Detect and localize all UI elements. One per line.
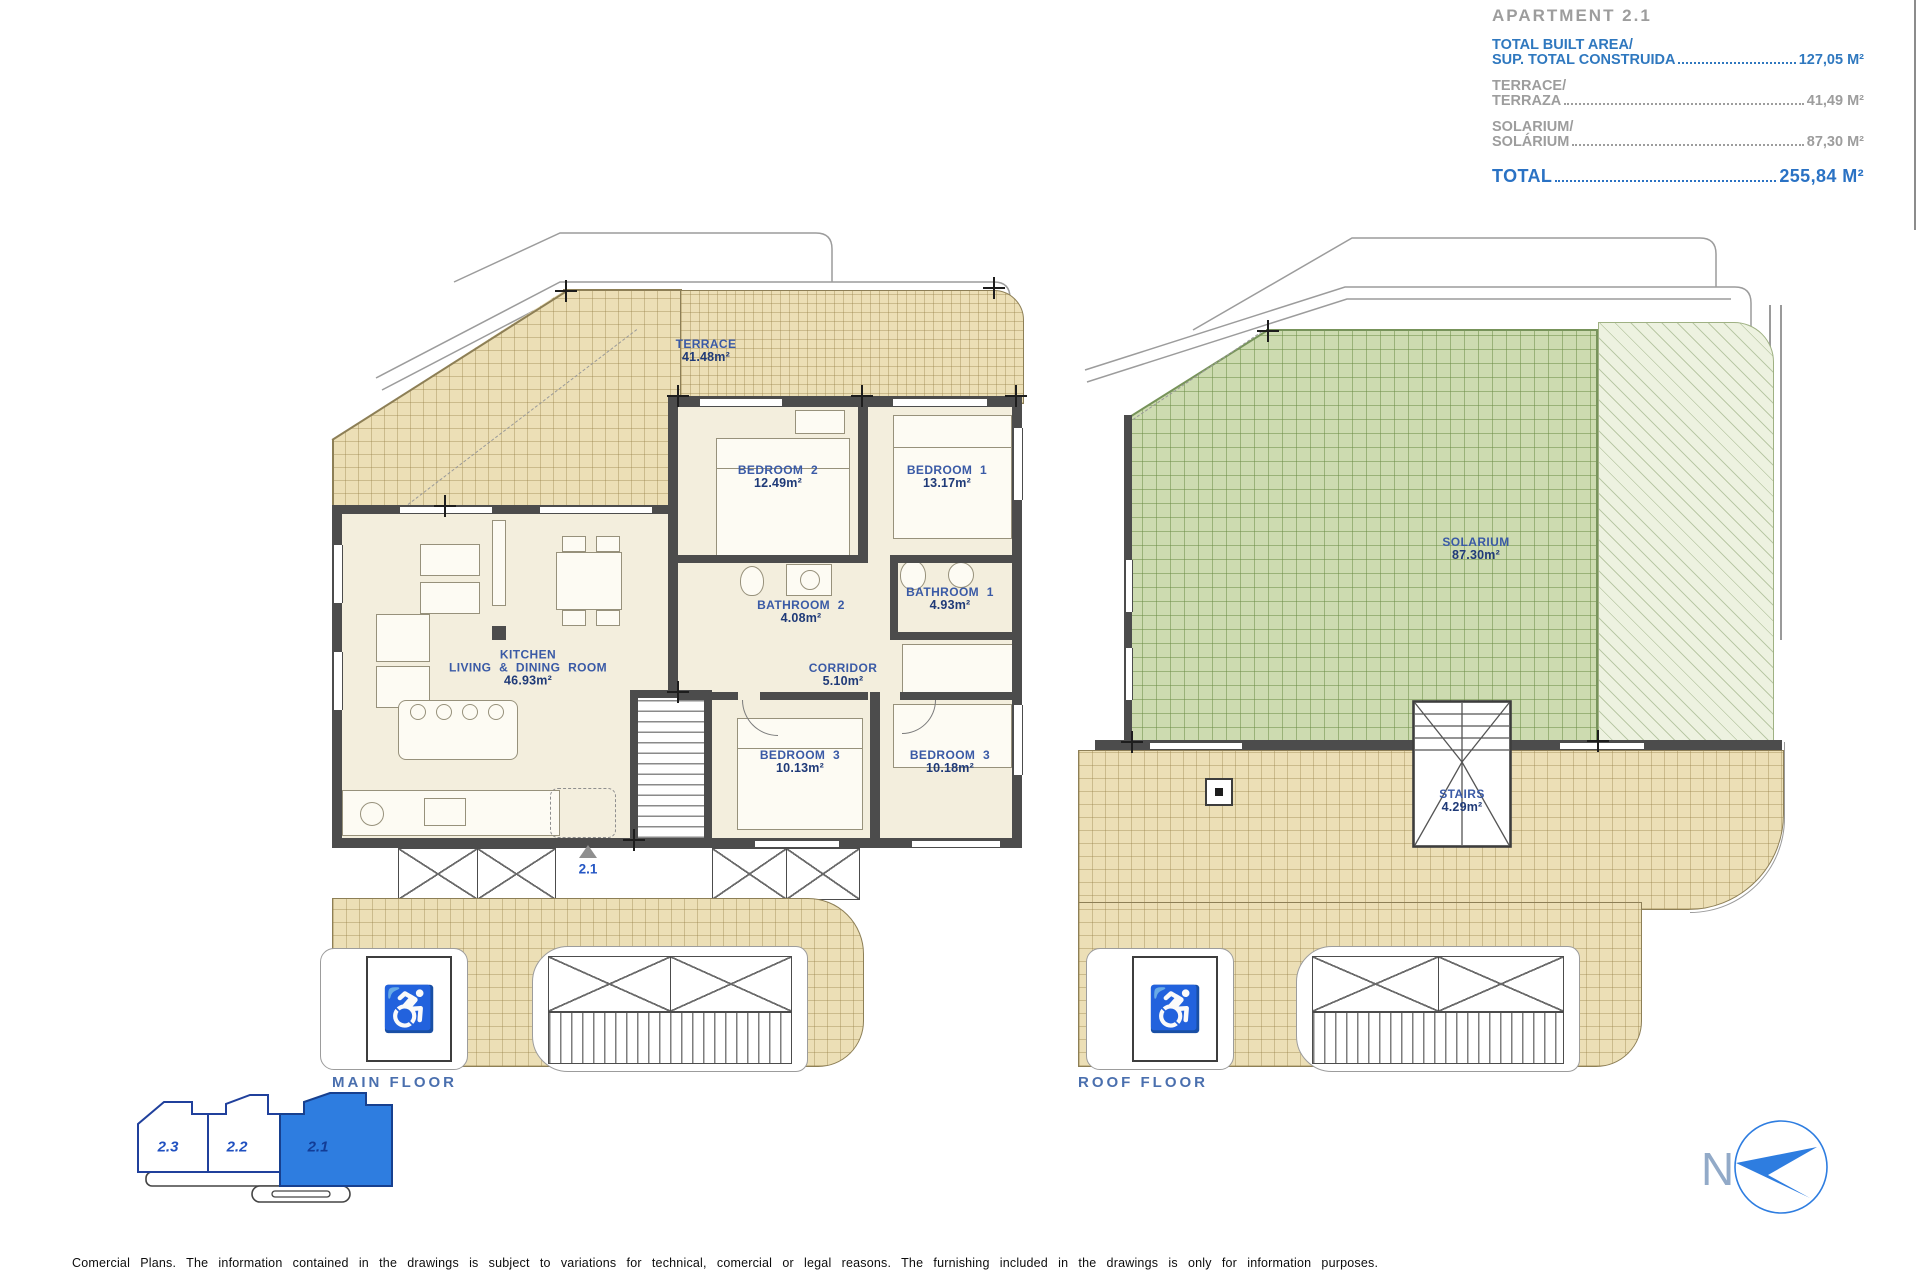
- column-dot: [1215, 788, 1223, 796]
- survey-cross: [623, 829, 645, 851]
- apartment-title: APARTMENT 2.1: [1492, 6, 1864, 26]
- info-row-solarium: SOLARIUM/ SOLÁRIUM 87,30 M²: [1492, 120, 1864, 150]
- room-name: TERRACE: [676, 337, 737, 351]
- room-label-terrace: TERRACE 41.48m²: [676, 338, 737, 364]
- room-name: BATHROOM 1: [906, 585, 994, 599]
- window: [893, 398, 987, 407]
- wall: [678, 555, 858, 563]
- lightwell-box: [548, 956, 792, 1012]
- room-area: 4.93m²: [906, 599, 994, 612]
- stool: [436, 704, 452, 720]
- info-label: SUP. TOTAL CONSTRUIDA: [1492, 53, 1675, 68]
- window: [755, 840, 839, 848]
- stair-treads: [548, 1012, 792, 1064]
- wall: [858, 396, 868, 563]
- sink: [360, 802, 384, 826]
- room-area: 12.49m²: [738, 477, 818, 490]
- room-area: 4.08m²: [757, 612, 845, 625]
- stool: [462, 704, 478, 720]
- roof-edge-line: [1780, 305, 1782, 640]
- info-value: 41,49 M²: [1807, 94, 1864, 109]
- room-area: 87.30m²: [1442, 549, 1509, 562]
- info-row-terrace: TERRACE/ TERRAZA 41,49 M²: [1492, 79, 1864, 109]
- room-area: 10.13m²: [760, 762, 840, 775]
- wall: [630, 690, 638, 848]
- room-area: 41.48m²: [676, 351, 737, 364]
- info-row-built-area: TOTAL BUILT AREA/ SUP. TOTAL CONSTRUIDA …: [1492, 38, 1864, 68]
- room-label-bathroom1: BATHROOM 1 4.93m²: [906, 586, 994, 612]
- wall: [890, 632, 1022, 640]
- room-label-bedroom3b: BEDROOM 3 10.18m²: [910, 749, 990, 775]
- x-cell: [549, 957, 670, 1011]
- x-cell: [786, 849, 860, 899]
- chair: [596, 610, 620, 626]
- stool: [410, 704, 426, 720]
- room-area: 5.10m²: [809, 675, 878, 688]
- chair: [562, 536, 586, 552]
- key-unit-2-2: 2.2: [227, 1139, 248, 1156]
- survey-cross: [1257, 320, 1279, 342]
- dining-table: [556, 552, 622, 610]
- info-panel: APARTMENT 2.1 TOTAL BUILT AREA/ SUP. TOT…: [1492, 6, 1864, 187]
- window: [333, 652, 343, 710]
- washbasin-bowl: [800, 570, 820, 590]
- info-value: 127,05 M²: [1799, 53, 1864, 68]
- accessible-lift: ♿: [1132, 956, 1218, 1062]
- info-value: 87,30 M²: [1807, 135, 1864, 150]
- window: [540, 506, 652, 514]
- sheet-edge-line: [1914, 0, 1916, 230]
- survey-cross: [667, 681, 689, 703]
- bed: [716, 438, 850, 558]
- info-label: TERRAZA: [1492, 94, 1561, 109]
- window: [1013, 428, 1023, 500]
- lightwell-box: [398, 848, 556, 900]
- window: [912, 840, 1000, 848]
- x-cell: [399, 849, 477, 899]
- info-row-total: TOTAL 255,84 M²: [1492, 166, 1864, 187]
- room-label-bedroom3a: BEDROOM 3 10.13m²: [760, 749, 840, 775]
- room-name: KITCHEN: [500, 648, 556, 662]
- dashed-outline-box: [550, 788, 616, 838]
- stair-treads: [1312, 1012, 1564, 1064]
- info-label: SOLARIUM/: [1492, 120, 1864, 135]
- wall: [760, 692, 868, 700]
- dotted-leader: [1564, 103, 1803, 105]
- chair: [596, 536, 620, 552]
- accessible-lift: ♿: [366, 956, 452, 1062]
- lightwell-box: [1312, 956, 1564, 1012]
- room-label-corridor: CORRIDOR 5.10m²: [809, 662, 878, 688]
- window: [1125, 560, 1133, 612]
- roof-floor-caption: ROOF FLOOR: [1078, 1074, 1208, 1091]
- wall: [870, 692, 880, 848]
- x-cell: [477, 849, 556, 899]
- room-label-bathroom2: BATHROOM 2 4.08m²: [757, 599, 845, 625]
- room-area: 13.17m²: [907, 477, 987, 490]
- room-name: LIVING & DINING ROOM: [449, 661, 607, 675]
- window: [1125, 648, 1133, 700]
- survey-cross: [1587, 730, 1609, 752]
- room-label-bedroom2: BEDROOM 2 12.49m²: [738, 464, 818, 490]
- room-name: STAIRS: [1439, 787, 1485, 801]
- bed-line: [893, 447, 1012, 448]
- info-label: TERRACE/: [1492, 79, 1864, 94]
- total-value: 255,84 M²: [1779, 166, 1864, 187]
- wall: [668, 396, 678, 698]
- staircase: [638, 698, 704, 838]
- x-cell: [1438, 957, 1564, 1011]
- room-name: BATHROOM 2: [757, 598, 845, 612]
- wall: [704, 690, 712, 848]
- key-unit-2-1-highlighted: 2.1: [308, 1139, 329, 1156]
- armchair: [420, 544, 480, 576]
- armchair: [420, 582, 480, 614]
- solarium-edge: [1596, 329, 1598, 742]
- total-label: TOTAL: [1492, 166, 1552, 187]
- entry-arrow-icon: [579, 845, 597, 858]
- survey-cross: [1121, 731, 1143, 753]
- window: [1013, 705, 1023, 775]
- column-box: [1205, 778, 1233, 806]
- north-compass: N: [1695, 1105, 1865, 1240]
- survey-cross: [434, 495, 456, 517]
- survey-cross: [1005, 385, 1027, 407]
- entry-unit-label: 2.1: [579, 862, 598, 877]
- survey-cross: [667, 385, 689, 407]
- dotted-leader: [1678, 62, 1795, 64]
- survey-cross: [555, 280, 577, 302]
- x-cell: [670, 957, 792, 1011]
- sofa: [376, 614, 430, 662]
- wall: [900, 692, 1022, 700]
- key-unit-2-3: 2.3: [158, 1139, 179, 1156]
- terrace-edge: [332, 439, 334, 507]
- survey-cross: [983, 277, 1005, 299]
- wall: [890, 555, 1022, 563]
- column: [492, 626, 506, 640]
- chair: [562, 610, 586, 626]
- info-label: TOTAL BUILT AREA/: [1492, 38, 1864, 53]
- toilet: [740, 566, 764, 596]
- dotted-leader: [1572, 144, 1803, 146]
- disclaimer: Comercial Plans. The information contain…: [72, 1256, 1542, 1270]
- wardrobe: [795, 410, 845, 434]
- roof-stairs-box: [1412, 700, 1512, 848]
- room-label-kitchen: KITCHEN LIVING & DINING ROOM 46.93m²: [449, 649, 607, 688]
- stool: [488, 704, 504, 720]
- room-area: 46.93m²: [449, 675, 607, 688]
- room-name: BEDROOM 1: [907, 463, 987, 477]
- room-area: 10.18m²: [910, 762, 990, 775]
- hob: [424, 798, 466, 826]
- wheelchair-icon: ♿: [382, 983, 437, 1035]
- room-label-bedroom1: BEDROOM 1 13.17m²: [907, 464, 987, 490]
- window: [1150, 742, 1242, 750]
- room-name: CORRIDOR: [809, 661, 878, 675]
- floor-plan-sheet: APARTMENT 2.1 TOTAL BUILT AREA/ SUP. TOT…: [0, 0, 1920, 1280]
- x-cell: [1313, 957, 1438, 1011]
- room-area: 4.29m²: [1439, 801, 1485, 814]
- room-name: BEDROOM 3: [760, 748, 840, 762]
- north-arrow-icon: [1736, 1147, 1817, 1198]
- solarium-border-surface: [1598, 322, 1774, 744]
- terrace-edge: [563, 289, 682, 291]
- room-name: BEDROOM 2: [738, 463, 818, 477]
- main-floor-caption: MAIN FLOOR: [332, 1074, 457, 1091]
- tv-unit: [492, 520, 506, 606]
- shower: [902, 644, 1014, 698]
- north-letter: N: [1701, 1143, 1734, 1195]
- room-label-stairs: STAIRS 4.29m²: [1439, 788, 1485, 814]
- info-label: SOLÁRIUM: [1492, 135, 1569, 150]
- lightwell-box: [712, 848, 860, 900]
- window: [700, 398, 782, 407]
- wall: [890, 555, 898, 640]
- room-name: BEDROOM 3: [910, 748, 990, 762]
- survey-cross: [851, 385, 873, 407]
- window: [333, 545, 343, 603]
- solarium-edge: [1266, 329, 1598, 331]
- x-cell: [713, 849, 786, 899]
- dotted-leader: [1555, 180, 1776, 182]
- wheelchair-icon: ♿: [1148, 983, 1203, 1035]
- solarium-surface: [1128, 330, 1598, 742]
- room-name: SOLARIUM: [1442, 535, 1509, 549]
- room-label-solarium: SOLARIUM 87.30m²: [1442, 536, 1509, 562]
